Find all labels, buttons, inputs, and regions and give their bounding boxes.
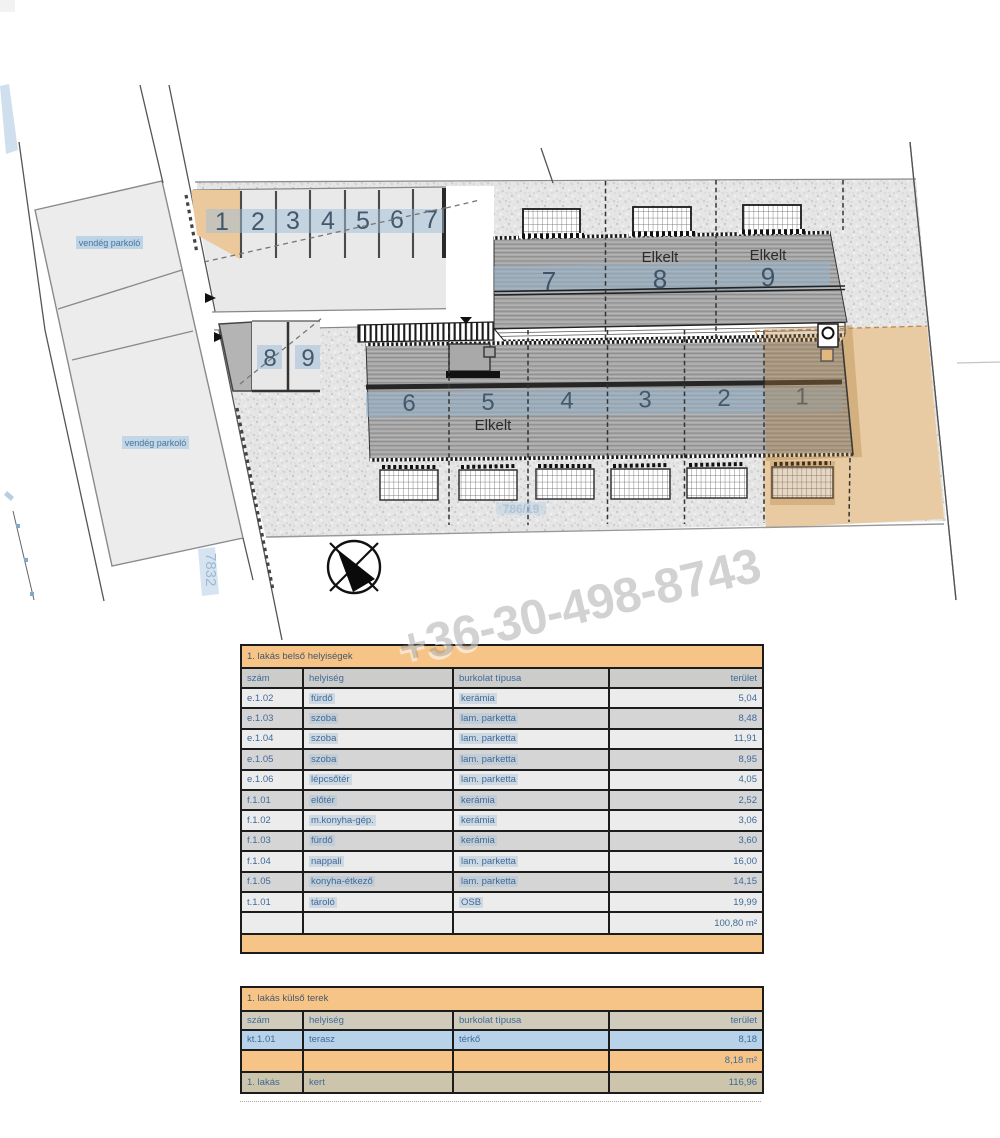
svg-text:6: 6 — [402, 390, 415, 417]
svg-text:2: 2 — [717, 385, 730, 412]
svg-text:Elkelt: Elkelt — [475, 417, 513, 434]
svg-text:9: 9 — [301, 345, 314, 372]
svg-text:7832: 7832 — [202, 553, 219, 586]
svg-text:1: 1 — [215, 208, 229, 236]
svg-text:5: 5 — [481, 389, 494, 416]
svg-text:8: 8 — [653, 264, 667, 294]
svg-text:4: 4 — [560, 388, 573, 415]
svg-text:8: 8 — [263, 345, 276, 372]
svg-text:7: 7 — [542, 266, 556, 296]
svg-text:3: 3 — [286, 207, 300, 235]
svg-text:786/19: 786/19 — [503, 502, 540, 516]
svg-text:3: 3 — [638, 387, 651, 414]
svg-text:vendég parkoló: vendég parkoló — [79, 238, 141, 248]
svg-text:5: 5 — [356, 207, 370, 235]
svg-text:9: 9 — [761, 262, 775, 292]
svg-text:vendég parkoló: vendég parkoló — [125, 438, 187, 448]
svg-text:2: 2 — [251, 208, 265, 236]
svg-text:4: 4 — [321, 207, 335, 235]
